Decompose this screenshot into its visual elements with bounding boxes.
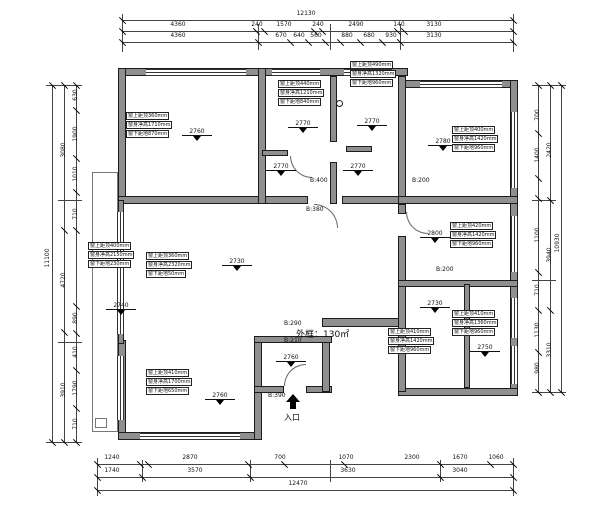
dimension-label: 10930	[554, 229, 562, 257]
dimension-label: 3630	[334, 467, 362, 475]
window	[146, 69, 246, 76]
level-triangle-icon	[439, 146, 447, 151]
window	[140, 433, 240, 440]
dimension-label: 560	[302, 32, 330, 40]
elevation-value: 2770	[266, 163, 296, 171]
elevation-marker: 2760	[182, 128, 212, 141]
double-circle-symbol	[336, 100, 343, 107]
dimension-label: 1100	[534, 221, 542, 249]
wall	[322, 318, 406, 327]
elevation-marker: 2730	[420, 300, 450, 313]
dimension-label: 2300	[398, 454, 426, 462]
annotation-line: 窗上距顶410mm	[146, 369, 189, 377]
beam-label: B:290	[284, 320, 302, 327]
elevation-value: 2770	[343, 163, 373, 171]
dimension-label: 1570	[270, 21, 298, 29]
dimension-label: 11100	[44, 244, 52, 272]
window-annotation: 窗上距顶490mm窗身净高1320mm窗下距地960mm	[350, 61, 396, 88]
window-annotation: 窗上距顶400mm窗身净高2150mm窗下距地230mm	[88, 242, 134, 269]
dimension-line	[97, 464, 514, 465]
beam-label: B:200	[436, 266, 454, 273]
dimension-label: 1670	[446, 454, 474, 462]
elevation-value: 2750	[470, 344, 500, 352]
dimension-label: 3310	[546, 336, 554, 364]
window	[420, 81, 502, 88]
annotation-line: 窗下距地960mm	[350, 79, 393, 87]
level-triangle-icon	[431, 308, 439, 313]
wall	[398, 236, 406, 392]
wall	[398, 204, 406, 214]
dimension-label: 12130	[292, 10, 320, 18]
wall	[262, 150, 288, 156]
elevation-marker: 2770	[266, 163, 296, 176]
elevation-value: 2770	[288, 120, 318, 128]
wall	[346, 146, 372, 152]
annotation-line: 窗身净高1710mm	[126, 121, 172, 129]
wall	[398, 196, 518, 204]
elevation-marker: 2760	[205, 392, 235, 405]
annotation-line: 窗身净高1420mm	[450, 231, 496, 239]
wall	[330, 162, 337, 204]
elevation-marker: 2740	[106, 302, 136, 315]
window-annotation: 窗上距顶410mm窗身净高1360mm窗下距地960mm	[452, 310, 498, 337]
elevation-marker: 2730	[222, 258, 252, 271]
wall	[322, 336, 330, 392]
beam-label: B:390	[268, 392, 286, 399]
level-triangle-icon	[233, 266, 241, 271]
dimension-label: 4720	[60, 266, 68, 294]
annotation-line: 窗身净高2150mm	[88, 251, 134, 259]
window	[117, 212, 124, 334]
annotation-line: 窗下距地960mm	[388, 346, 431, 354]
dimension-label: 3040	[446, 467, 474, 475]
elevation-value: 2800	[420, 230, 450, 238]
elevation-marker: 2750	[470, 344, 500, 357]
beam-label: B:380	[306, 206, 324, 213]
elevation-value: 2760	[276, 354, 306, 362]
annotation-line: 窗上距顶360mm	[146, 252, 189, 260]
balcony-box	[95, 418, 107, 428]
dimension-label: 1010	[72, 160, 80, 188]
dimension-label: 1400	[534, 141, 542, 169]
dimension-label: 1070	[332, 454, 360, 462]
level-triangle-icon	[354, 171, 362, 176]
annotation-line: 窗下距地870mm	[126, 130, 169, 138]
dimension-label: 710	[534, 276, 542, 304]
annotation-line: 窗上距顶440mm	[278, 80, 321, 88]
annotation-line: 窗下距地960mm	[452, 328, 495, 336]
dimension-label: 140	[385, 21, 413, 29]
level-triangle-icon	[277, 171, 285, 176]
dimension-label: 4360	[164, 21, 192, 29]
window-annotation: 窗上距顶360mm窗身净高2320mm窗下距地50mm	[146, 252, 192, 279]
elevation-marker: 2770	[343, 163, 373, 176]
dimension-line	[97, 490, 514, 491]
dimension-label: 980	[534, 354, 542, 382]
annotation-line: 窗上距顶410mm	[388, 328, 431, 336]
annotation-line: 窗上距顶400mm	[88, 242, 131, 250]
window	[272, 69, 320, 76]
window-annotation: 窗上距顶410mm窗身净高1420mm窗下距地960mm	[388, 328, 434, 355]
dimension-label: 2420	[546, 136, 554, 164]
dimension-label: 1900	[72, 120, 80, 148]
door-arc	[284, 364, 306, 386]
beam-label: B:200	[412, 177, 430, 184]
dimension-label: 410	[72, 338, 80, 366]
dimension-label: 1130	[534, 316, 542, 344]
window-annotation: 窗上距顶400mm窗身净高1420mm窗下距地960mm	[452, 126, 498, 153]
window	[511, 112, 518, 188]
dimension-label: 3130	[420, 21, 448, 29]
dimension-label: 240	[304, 21, 332, 29]
dimension-line	[52, 85, 53, 443]
elevation-value: 2760	[205, 392, 235, 400]
wall	[398, 76, 406, 204]
wall	[342, 196, 402, 204]
dimension-label: 700	[534, 101, 542, 129]
window	[511, 216, 518, 272]
level-triangle-icon	[287, 362, 295, 367]
elevation-marker: 2770	[357, 118, 387, 131]
annotation-line: 窗身净高1700mm	[146, 378, 192, 386]
entrance-arrow-icon	[286, 394, 300, 402]
level-triangle-icon	[193, 136, 201, 141]
elevation-marker: 2800	[420, 230, 450, 243]
dimension-label: 1790	[72, 374, 80, 402]
elevation-marker: 2770	[288, 120, 318, 133]
annotation-line: 窗上距顶490mm	[350, 61, 393, 69]
window	[117, 356, 124, 420]
wall	[118, 196, 268, 204]
elevation-value: 2740	[106, 302, 136, 310]
annotation-line: 窗上距顶410mm	[452, 310, 495, 318]
entrance-arrow-icon	[290, 402, 296, 409]
dimension-label: 2490	[342, 21, 370, 29]
wall	[258, 68, 266, 204]
dimension-label: 4360	[164, 32, 192, 40]
dimension-label: 12470	[284, 480, 312, 488]
window-annotation: 窗上距顶420mm窗身净高1420mm窗下距地960mm	[450, 222, 496, 249]
dimension-label: 3130	[420, 32, 448, 40]
dimension-label: 1240	[98, 454, 126, 462]
annotation-line: 窗身净高1360mm	[452, 319, 498, 327]
annotation-line: 窗下距地840mm	[278, 98, 321, 106]
annotation-line: 窗身净高2320mm	[146, 261, 192, 269]
window	[511, 298, 518, 338]
annotation-line: 窗身净高1320mm	[350, 70, 396, 78]
dimension-line	[330, 460, 331, 482]
dimension-label: 1740	[98, 467, 126, 475]
annotation-line: 窗下距地960mm	[450, 240, 493, 248]
annotation-line: 窗下距地650mm	[146, 387, 189, 395]
dimension-label: 700	[266, 454, 294, 462]
dimension-label: 930	[377, 32, 405, 40]
floor-plan: 外框：130㎡ 入口 12130436024015702402490140313…	[0, 0, 600, 511]
level-triangle-icon	[216, 400, 224, 405]
area-label: 外框：130㎡	[296, 327, 349, 340]
dimension-label: 710	[72, 200, 80, 228]
level-triangle-icon	[431, 238, 439, 243]
elevation-value: 2730	[222, 258, 252, 266]
dimension-line	[122, 42, 513, 43]
dimension-label: 240	[243, 21, 271, 29]
level-triangle-icon	[117, 310, 125, 315]
annotation-line: 窗下距地50mm	[146, 270, 186, 278]
annotation-line: 窗上距顶420mm	[450, 222, 493, 230]
dimension-line	[97, 477, 514, 478]
annotation-line: 窗下距地960mm	[452, 144, 495, 152]
dimension-label: 890	[72, 304, 80, 332]
dimension-label: 3940	[546, 241, 554, 269]
wall	[330, 76, 337, 142]
elevation-value: 2730	[420, 300, 450, 308]
window-annotation: 窗上距顶360mm窗身净高1710mm窗下距地870mm	[126, 112, 172, 139]
dimension-label: 710	[72, 410, 80, 438]
wall	[118, 68, 126, 204]
level-triangle-icon	[481, 352, 489, 357]
annotation-line: 窗身净高1210mm	[278, 89, 324, 97]
annotation-line: 窗上距顶360mm	[126, 112, 169, 120]
dimension-label: 2870	[176, 454, 204, 462]
dimension-label: 3080	[60, 136, 68, 164]
elevation-value: 2760	[182, 128, 212, 136]
annotation-line: 窗下距地230mm	[88, 260, 131, 268]
window-annotation: 窗上距顶440mm窗身净高1210mm窗下距地840mm	[278, 80, 324, 107]
window-annotation: 窗上距顶410mm窗身净高1700mm窗下距地650mm	[146, 369, 192, 396]
wall	[398, 280, 518, 287]
dimension-label: 1060	[482, 454, 510, 462]
annotation-line: 窗身净高1420mm	[452, 135, 498, 143]
wall	[398, 388, 518, 396]
dimension-label: 3910	[60, 376, 68, 404]
annotation-line: 窗身净高1420mm	[388, 337, 434, 345]
elevation-marker: 2760	[276, 354, 306, 367]
entrance-label: 入口	[284, 412, 300, 423]
level-triangle-icon	[368, 126, 376, 131]
elevation-value: 2770	[357, 118, 387, 126]
annotation-line: 窗上距顶400mm	[452, 126, 495, 134]
wall	[262, 196, 308, 204]
dimension-label: 3570	[181, 467, 209, 475]
level-triangle-icon	[299, 128, 307, 133]
beam-label: B:400	[310, 177, 328, 184]
dimension-label: 630	[72, 81, 80, 109]
window	[511, 346, 518, 384]
